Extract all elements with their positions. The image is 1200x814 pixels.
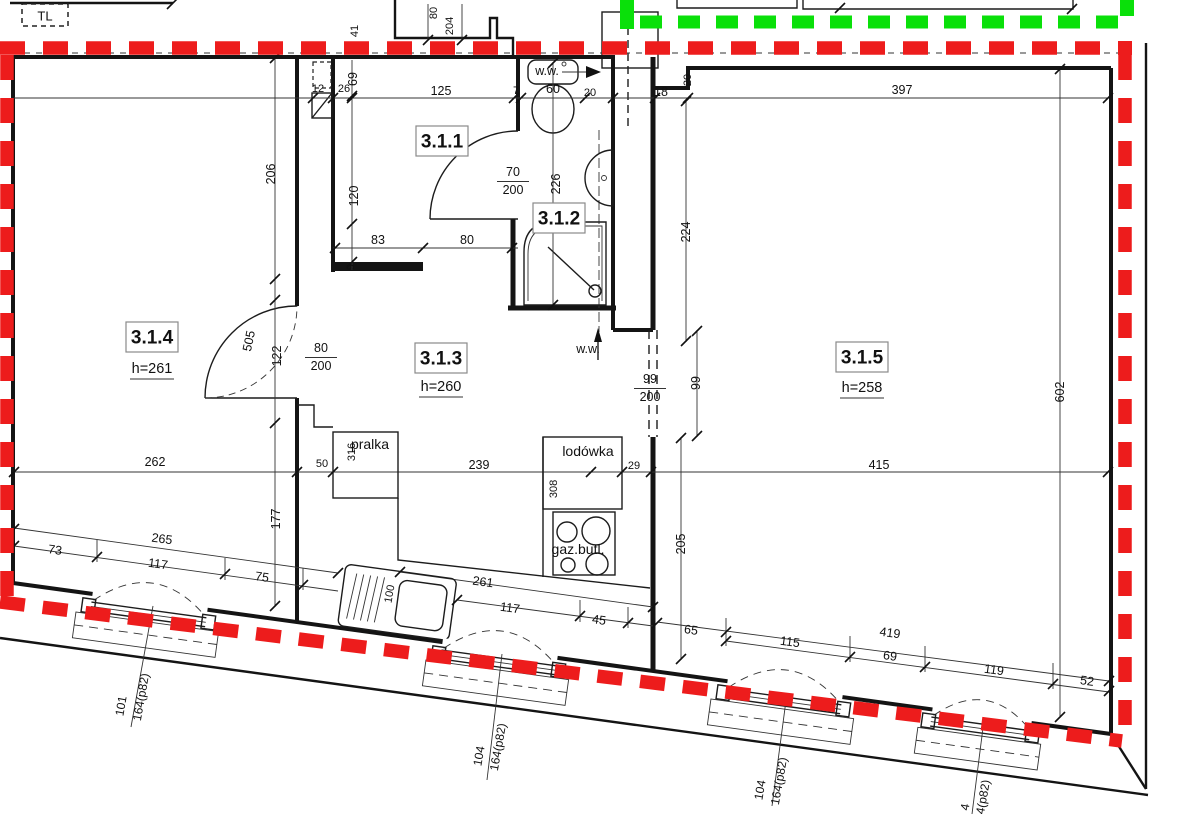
vent-label-2: w.w. [575, 342, 600, 356]
basin-tap [602, 176, 607, 181]
vent-arrow-up [594, 328, 602, 342]
dim-119: 119 [983, 662, 1005, 679]
dim-120: 120 [347, 186, 361, 207]
adjacent-boundary-green [620, 0, 1134, 29]
vent-label-1: w.w. [534, 64, 559, 78]
dim-115: 115 [779, 634, 801, 651]
dim-224: 224 [679, 222, 693, 243]
dim-397: 397 [892, 83, 913, 97]
window-3-size: 164(p82) [768, 756, 790, 806]
window-2-size: 164(p82) [487, 722, 509, 772]
window-3-ref: 104 [751, 779, 768, 801]
dim-262: 262 [145, 455, 166, 469]
window-2-ref: 104 [470, 745, 487, 767]
dim-419: 419 [879, 625, 902, 642]
dim-69b: 69 [882, 648, 898, 664]
dim-125: 125 [431, 84, 452, 98]
dim-308: 308 [548, 480, 560, 498]
dim-60: 60 [546, 82, 560, 96]
room-label-3.1.4: 3.1.4 [131, 328, 174, 349]
dim-45: 45 [591, 612, 607, 628]
dim-226: 226 [549, 174, 563, 195]
dim-117a: 117 [147, 556, 169, 573]
dim-29: 29 [628, 460, 640, 472]
unit-boundary-red [0, 41, 1132, 741]
door-314-width: 80 [314, 341, 328, 355]
dim-205: 205 [674, 534, 688, 555]
dim-100: 100 [382, 584, 397, 604]
window-1-ref: 101 [112, 695, 129, 717]
dim-602: 602 [1053, 382, 1067, 403]
dim-122: 122 [270, 346, 284, 367]
room-label-3.1.5: 3.1.5 [841, 348, 884, 369]
floor-plan-drawing: 3.1.13.1.23.1.3h=2603.1.4h=2613.1.5h=258… [0, 0, 1200, 814]
floor-plan-page: 3.1.13.1.23.1.3h=2603.1.4h=2613.1.5h=258… [0, 0, 1200, 814]
dim-80-kit: 80 [460, 233, 474, 247]
dim-9: 9 [345, 264, 357, 270]
gas-stove-label: gaz.butl. [552, 541, 605, 557]
window-4-ref: 4 [958, 802, 973, 811]
kitchen-fittings [333, 432, 650, 641]
room-height-3.1.5: h=258 [842, 380, 883, 396]
dim-83: 83 [371, 233, 385, 247]
door-314-height: 200 [311, 359, 332, 373]
dim-415: 415 [869, 458, 890, 472]
opening-315-width: 99 [643, 372, 657, 386]
dim-65: 65 [683, 622, 699, 638]
dim-75: 75 [254, 569, 270, 585]
dim-239: 239 [469, 458, 490, 472]
fridge-label: lodówka [562, 443, 614, 459]
door-311-width: 70 [506, 165, 520, 179]
dim-265: 265 [151, 531, 174, 548]
dim-117b: 117 [499, 600, 521, 617]
dim-204-top: 204 [444, 17, 456, 35]
vent-degree-mark [562, 62, 566, 66]
dim-52: 52 [1079, 673, 1095, 689]
dim-20-315: 20 [682, 74, 694, 86]
door-311-height: 200 [503, 183, 524, 197]
opening-315-height: 200 [640, 390, 661, 404]
room-height-3.1.4: h=261 [132, 361, 173, 377]
dim-80-top: 80 [428, 7, 440, 19]
dim-69: 69 [346, 72, 360, 86]
dim-99v: 99 [689, 376, 703, 390]
tl-label: TL [37, 9, 52, 24]
exterior-walls [0, 43, 1148, 795]
dim-41: 41 [349, 25, 361, 37]
room-height-3.1.3: h=260 [421, 379, 462, 395]
room-label-3.1.2: 3.1.2 [538, 209, 580, 230]
dim-261: 261 [472, 574, 495, 591]
vent-arrow-right [586, 66, 601, 78]
dim-50: 50 [316, 458, 328, 470]
window-1-size: 164(p82) [130, 672, 152, 722]
room-label-3.1.3: 3.1.3 [420, 349, 462, 370]
dim-206: 206 [264, 164, 278, 185]
dim-505: 505 [240, 329, 258, 352]
room-label-3.1.1: 3.1.1 [421, 132, 464, 153]
dim-316: 316 [346, 443, 358, 461]
dim-73: 73 [47, 542, 63, 558]
dim-177: 177 [269, 509, 283, 530]
